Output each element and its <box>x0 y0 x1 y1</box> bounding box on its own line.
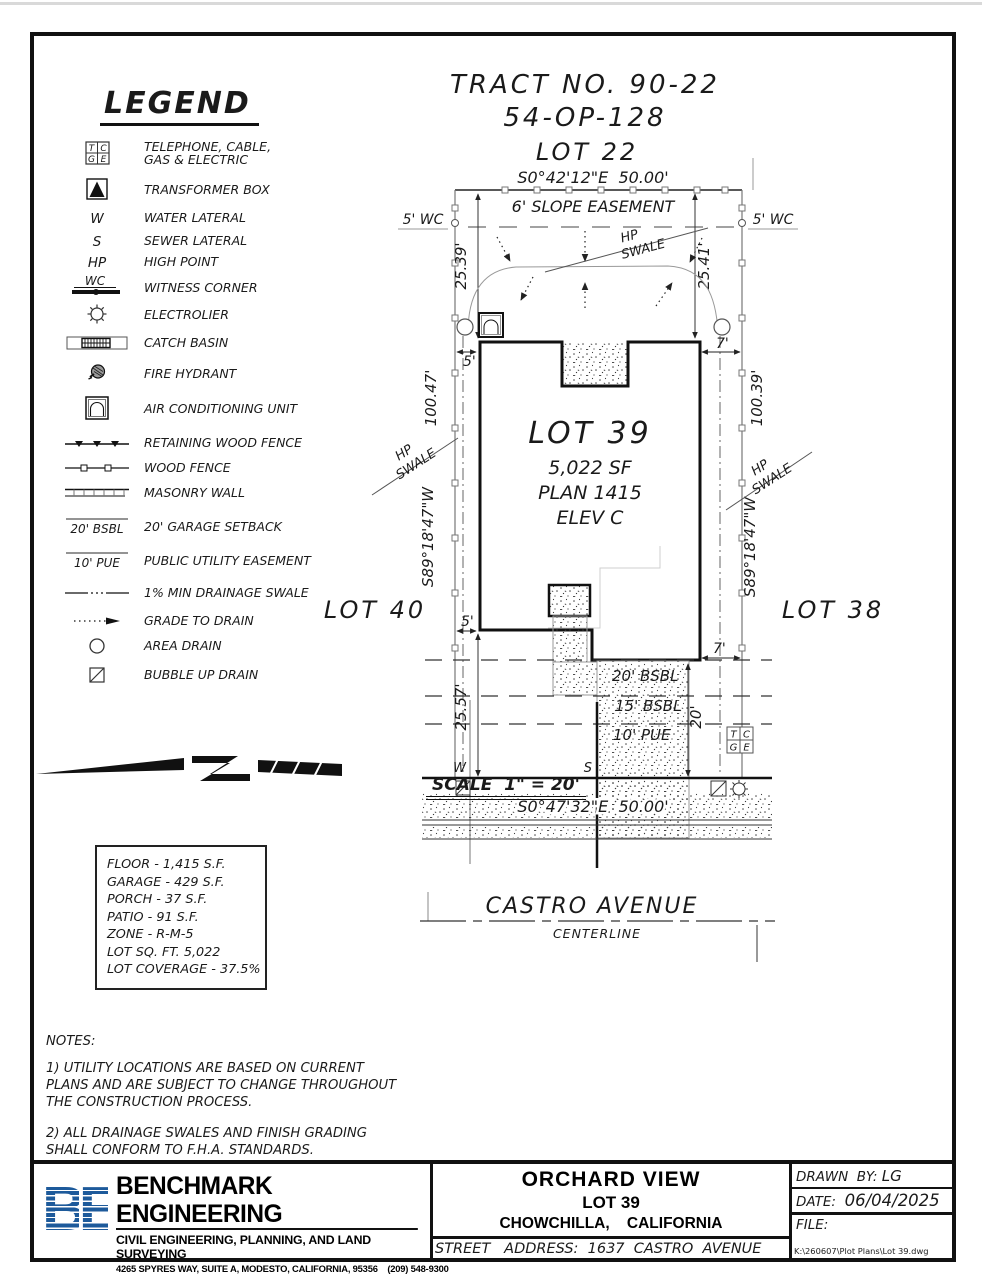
tract-map-ref: 54-OP-128 <box>503 103 666 133</box>
drawn-by-value: LG <box>882 1167 902 1185</box>
masonry-wall-icon <box>58 485 136 501</box>
tcge-utility-box: T C G E <box>727 727 753 754</box>
title-block-project-cell: ORCHARD VIEW LOT 39 CHOWCHILLA, CALIFORN… <box>433 1164 792 1258</box>
legend-item-catch-basin: CATCH BASIN <box>58 332 363 353</box>
svg-text:5' WC: 5' WC <box>753 212 794 228</box>
stat-patio: PATIO - 91 S.F. <box>107 909 255 927</box>
bsbl-20-label: 20' BSBL <box>612 667 678 685</box>
hp-swale-top: HP SWALE <box>545 221 708 272</box>
legend-title: LEGEND <box>100 86 259 126</box>
title-block-meta-cell: DRAWN BY: LG DATE: 06/04/2025 FILE: K:\2… <box>792 1164 952 1258</box>
title-block: BE BENCHMARK ENGINEERING CIVIL ENGINEERI… <box>30 1160 956 1262</box>
lot-39-label: LOT 39 <box>528 416 651 451</box>
drawn-by-row: DRAWN BY: LG <box>792 1164 952 1189</box>
file-row: FILE: K:\260607\Plot Plans\Lot 39.dwg <box>792 1215 952 1258</box>
hp-swale-west: HP SWALE <box>372 432 458 495</box>
legend-label: ELECTROLIER <box>144 308 229 321</box>
electrolier-icon <box>58 303 136 325</box>
legend-item-highpoint: HP HIGH POINT <box>58 251 363 272</box>
svg-text:5' WC: 5' WC <box>403 212 444 228</box>
stat-porch: PORCH - 37 S.F. <box>107 891 255 909</box>
area-drain-west <box>457 319 473 335</box>
drainage-swale-line-icon <box>58 587 136 599</box>
title-block-company-cell: BE BENCHMARK ENGINEERING CIVIL ENGINEERI… <box>34 1164 433 1258</box>
legend-item-bubble-up-drain: BUBBLE UP DRAIN <box>58 664 363 685</box>
transformer-box-icon <box>58 178 136 200</box>
wood-fence-icon <box>58 461 136 475</box>
ac-unit-icon <box>58 396 136 420</box>
legend-label: HIGH POINT <box>144 255 218 268</box>
plot-plan-sheet: { "drawing": { "tract_no": "TRACT NO. 90… <box>0 0 982 1279</box>
legend-item-sewer: S SEWER LATERAL <box>58 230 363 251</box>
high-point-icon: HP <box>88 255 107 271</box>
scale-label: SCALE 1" = 20' <box>426 775 586 800</box>
legend-label: CATCH BASIN <box>144 336 228 349</box>
slope-easement-label: 6' SLOPE EASEMENT <box>512 197 676 216</box>
legend-item-wood-fence: WOOD FENCE <box>58 457 363 478</box>
pue-10-label: 10' PUE <box>613 726 671 744</box>
porch-hatch <box>549 585 590 616</box>
patio-hatch <box>563 343 627 385</box>
setback-7ft-bottom: 7' <box>713 641 726 657</box>
lot-22-label: LOT 22 <box>536 138 638 166</box>
stat-lot-sqft: LOT SQ. FT. 5,022 <box>107 944 255 962</box>
legend-item-electrolier: ELECTROLIER <box>58 303 363 325</box>
tract-number: TRACT NO. 90-22 <box>450 70 720 100</box>
legend-item-fire-hydrant: FIRE HYDRANT <box>58 362 363 384</box>
legend-item-masonry-wall: MASONRY WALL <box>58 482 363 503</box>
west-bearing-label: S89°18'47"W <box>419 486 437 587</box>
bsbl-15-label: 15' BSBL <box>615 697 681 715</box>
stat-garage: GARAGE - 429 S.F. <box>107 874 255 892</box>
file-path: K:\260607\Plot Plans\Lot 39.dwg <box>794 1246 929 1256</box>
notes-section: NOTES: 1) UTILITY LOCATIONS ARE BASED ON… <box>46 1033 406 1173</box>
legend-item-area-drain: AREA DRAIN <box>58 635 363 656</box>
svg-text:C: C <box>743 730 750 741</box>
plot-plan-drawing: TRACT NO. 90-22 54-OP-128 LOT 22 S0°42'1… <box>320 55 982 980</box>
elevation-label: ELEV C <box>557 507 625 529</box>
legend-label: 1% MIN DRAINAGE SWALE <box>144 586 309 599</box>
witness-corner-west: 5' WC <box>398 212 459 229</box>
benchmark-logo: BE <box>42 1174 108 1246</box>
retaining-wood-fence-icon <box>58 435 136 451</box>
svg-text:T: T <box>730 730 737 741</box>
company-address: 4265 SPYRES WAY, SUITE A, MODESTO, CALIF… <box>116 1263 424 1274</box>
note-2: 2) ALL DRAINAGE SWALES AND FINISH GRADIN… <box>46 1125 406 1159</box>
legend-item-water: W WATER LATERAL <box>58 207 363 228</box>
area-drain-icon <box>58 637 136 655</box>
north-bearing-label: S0°42'12"E 50.00' <box>517 168 668 187</box>
grade-to-drain-arrows <box>497 231 702 308</box>
lot-40-label: LOT 40 <box>324 596 426 624</box>
logo-letter-e: E <box>79 1175 108 1244</box>
legend-label: TELEPHONE, CABLE, GAS & ELECTRIC <box>144 140 294 166</box>
company-name: BENCHMARK ENGINEERING <box>116 1172 418 1230</box>
scan-artifact-line <box>0 2 982 5</box>
date-label: DATE: <box>796 1194 836 1210</box>
stat-lot-coverage: LOT COVERAGE - 37.5% <box>107 961 255 979</box>
dim-100-47-label: 100.47' <box>422 370 440 427</box>
stat-zone: ZONE - R-M-5 <box>107 926 255 944</box>
legend-item-retaining-fence: RETAINING WOOD FENCE <box>58 432 363 453</box>
east-bearing-label: S89°18'47"W <box>741 496 759 597</box>
legend-item-drainage-swale: 1% MIN DRAINAGE SWALE <box>58 582 363 603</box>
area-drain-east <box>714 319 730 335</box>
legend-label: AIR CONDITIONING UNIT <box>144 402 297 415</box>
project-city: CHOWCHILLA, CALIFORNIA <box>433 1215 789 1233</box>
north-arrow-scale-graphic <box>34 748 344 790</box>
area-summary-box: FLOOR - 1,415 S.F. GARAGE - 429 S.F. POR… <box>95 845 267 990</box>
legend-label: FIRE HYDRANT <box>144 367 236 380</box>
setback-5ft-top: 5' <box>463 354 476 370</box>
hp-swale-east: HP SWALE <box>726 447 812 510</box>
svg-text:E: E <box>743 743 750 754</box>
dim-25-39-label: 25.39' <box>452 242 470 289</box>
swale-curve <box>468 266 718 333</box>
walkway-hatch-lower <box>553 662 597 695</box>
date-row: DATE: 06/04/2025 <box>792 1189 952 1215</box>
witness-corner-icon: WC <box>58 275 136 299</box>
plan-label: PLAN 1415 <box>538 482 642 504</box>
project-name: ORCHARD VIEW <box>433 1168 789 1192</box>
legend-item-garage-setback: 20' BSBL 20' GARAGE SETBACK <box>58 515 363 537</box>
dim-25-57-label: 25.57' <box>452 683 470 730</box>
dim-20-label: 20' <box>687 705 705 728</box>
setback-7ft-top: 7' <box>716 336 729 352</box>
legend-item-tcge: T C G E TELEPHONE, CABLE, GAS & ELECTRIC <box>58 140 363 166</box>
fire-hydrant-icon <box>58 362 136 384</box>
legend-label: 20' GARAGE SETBACK <box>144 520 282 533</box>
legend: LEGEND T C G E TELEPHONE, CABLE, GAS & E… <box>58 86 363 685</box>
note-1: 1) UTILITY LOCATIONS ARE BASED ON CURREN… <box>46 1060 406 1111</box>
legend-label: WATER LATERAL <box>144 211 246 224</box>
legend-label: RETAINING WOOD FENCE <box>144 436 302 449</box>
tcge-box-icon: T C G E <box>58 141 136 165</box>
pue-line-icon: 10' PUE <box>58 549 136 571</box>
scale-block: SCALE 1" = 20' <box>34 748 586 800</box>
bsbl-line-icon: 20' BSBL <box>58 515 136 537</box>
svg-text:G: G <box>88 155 95 165</box>
street-address: STREET ADDRESS: 1637 CASTRO AVENUE <box>433 1236 789 1258</box>
svg-text:G: G <box>730 743 738 754</box>
legend-label: BUBBLE UP DRAIN <box>144 668 258 681</box>
legend-label: MASONRY WALL <box>144 486 245 499</box>
legend-label: AREA DRAIN <box>144 639 222 652</box>
catch-basin-icon <box>58 333 136 353</box>
legend-label: PUBLIC UTILITY EASEMENT <box>144 554 311 567</box>
date-value: 06/04/2025 <box>845 1191 940 1210</box>
logo-letter-b: B <box>42 1175 79 1244</box>
witness-corner-east: 5' WC <box>739 212 799 229</box>
setback-5ft-bottom: 5' <box>461 614 474 630</box>
lot-area-label: 5,022 SF <box>548 457 632 479</box>
grade-to-drain-arrow-icon <box>58 615 136 627</box>
svg-text:E: E <box>101 155 107 165</box>
legend-label: SEWER LATERAL <box>144 234 247 247</box>
bubble-up-drain-icon <box>58 666 136 684</box>
legend-label: GRADE TO DRAIN <box>144 614 254 627</box>
walkway-hatch <box>553 616 587 662</box>
notes-title: NOTES: <box>46 1033 406 1050</box>
svg-text:WC: WC <box>85 275 106 288</box>
legend-label: TRANSFORMER BOX <box>144 183 270 196</box>
svg-text:20' BSBL: 20' BSBL <box>70 522 123 536</box>
legend-item-pue: 10' PUE PUBLIC UTILITY EASEMENT <box>58 549 363 571</box>
ac-unit <box>479 313 503 337</box>
stat-floor: FLOOR - 1,415 S.F. <box>107 856 255 874</box>
water-lateral-icon: W <box>90 211 104 227</box>
legend-label: WOOD FENCE <box>144 461 231 474</box>
lot-38-label: LOT 38 <box>782 596 884 624</box>
sewer-lateral-icon: S <box>93 234 102 250</box>
svg-text:C: C <box>100 144 107 154</box>
legend-item-grade-to-drain: GRADE TO DRAIN <box>58 610 363 631</box>
svg-text:10' PUE: 10' PUE <box>74 556 120 570</box>
file-label: FILE: <box>796 1217 828 1233</box>
legend-item-ac-unit: AIR CONDITIONING UNIT <box>58 396 363 420</box>
street-name-label: CASTRO AVENUE <box>486 894 699 919</box>
legend-label: WITNESS CORNER <box>144 281 258 294</box>
dim-100-39-label: 100.39' <box>748 370 766 427</box>
legend-item-transformer: TRANSFORMER BOX <box>58 178 363 200</box>
company-tagline: CIVIL ENGINEERING, PLANNING, AND LAND SU… <box>116 1233 424 1261</box>
drawn-by-label: DRAWN BY: <box>796 1169 877 1185</box>
project-lot: LOT 39 <box>433 1193 789 1213</box>
legend-item-witness-corner: WC WITNESS CORNER <box>58 275 363 299</box>
centerline-label: CENTERLINE <box>553 926 641 941</box>
